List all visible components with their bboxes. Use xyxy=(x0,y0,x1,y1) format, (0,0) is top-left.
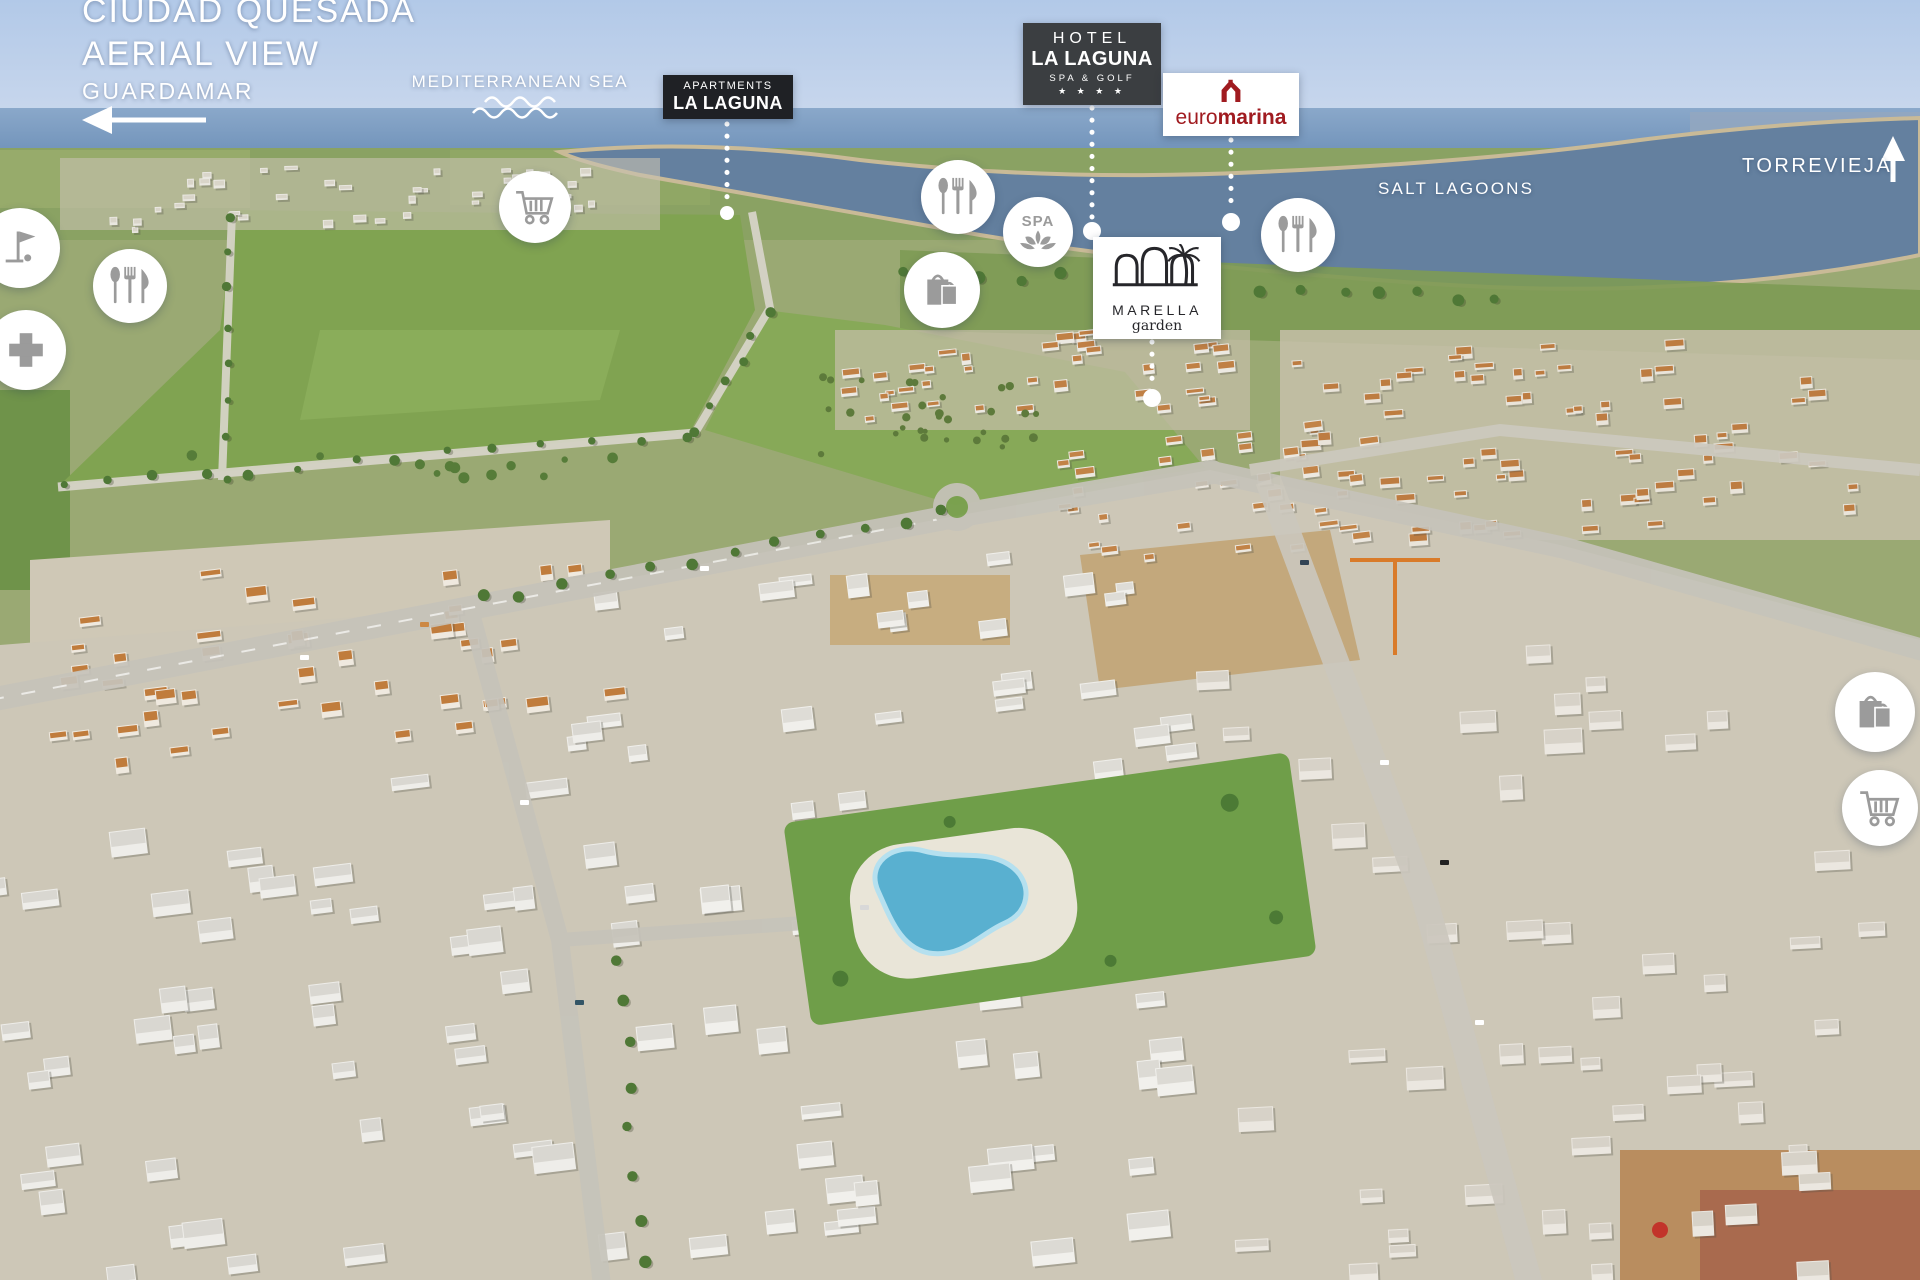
euromarina-house-icon xyxy=(1218,78,1244,102)
spa-icon-text: SPA xyxy=(1022,214,1055,229)
guardamar-label: GUARDAMAR xyxy=(82,78,254,105)
location-dot-euromarina xyxy=(1222,213,1240,231)
spa-icon: SPA xyxy=(1003,197,1073,267)
hotel-badge-line2: LA LAGUNA xyxy=(1023,48,1161,71)
location-dot-marella xyxy=(1143,389,1161,407)
restaurant-icon xyxy=(93,249,167,323)
apartments-badge-line2: LA LAGUNA xyxy=(663,93,793,114)
shopping-cart-icon xyxy=(499,171,571,243)
aerial-view-page: CIUDAD QUESADA AERIAL VIEW GUARDAMAR MED… xyxy=(0,0,1920,1280)
salt-lagoons-label: SALT LAGOONS xyxy=(1378,179,1534,199)
page-title-line1: CIUDAD QUESADA xyxy=(82,0,416,33)
hotel-badge-line1: HOTEL xyxy=(1023,30,1161,48)
euromarina-text-euro: euro xyxy=(1176,106,1218,129)
sea-waves-icon xyxy=(473,98,557,118)
hotel-stars: ★ ★ ★ ★ xyxy=(1023,86,1161,97)
page-title: CIUDAD QUESADA AERIAL VIEW xyxy=(82,0,416,76)
marella-sub: garden xyxy=(1093,318,1221,334)
page-title-line2: AERIAL VIEW xyxy=(82,33,416,76)
shopping-bags-icon xyxy=(904,252,980,328)
apartments-la-laguna-badge: APARTMENTS LA LAGUNA xyxy=(663,75,793,119)
location-dot-apartments xyxy=(720,206,734,220)
shopping-cart-icon xyxy=(1842,770,1918,846)
apartments-badge-line1: APARTMENTS xyxy=(663,80,793,92)
euromarina-badge: euromarina xyxy=(1163,73,1299,136)
marella-arches-palm-icon xyxy=(1107,244,1207,296)
marella-name: MARELLA xyxy=(1093,302,1221,318)
restaurant-icon xyxy=(921,160,995,234)
euromarina-text-marina: marina xyxy=(1218,106,1287,129)
marella-garden-badge: MARELLA garden xyxy=(1093,237,1221,339)
torrevieja-label: TORREVIEJA xyxy=(1742,155,1892,178)
shopping-bags-icon xyxy=(1835,672,1915,752)
mediterranean-sea-label: MEDITERRANEAN SEA xyxy=(400,72,640,92)
arrow-left-icon xyxy=(82,106,112,134)
hotel-badge-line3: SPA & GOLF xyxy=(1023,73,1161,84)
hotel-la-laguna-badge: HOTEL LA LAGUNA SPA & GOLF ★ ★ ★ ★ xyxy=(1023,23,1161,105)
restaurant-icon xyxy=(1261,198,1335,272)
